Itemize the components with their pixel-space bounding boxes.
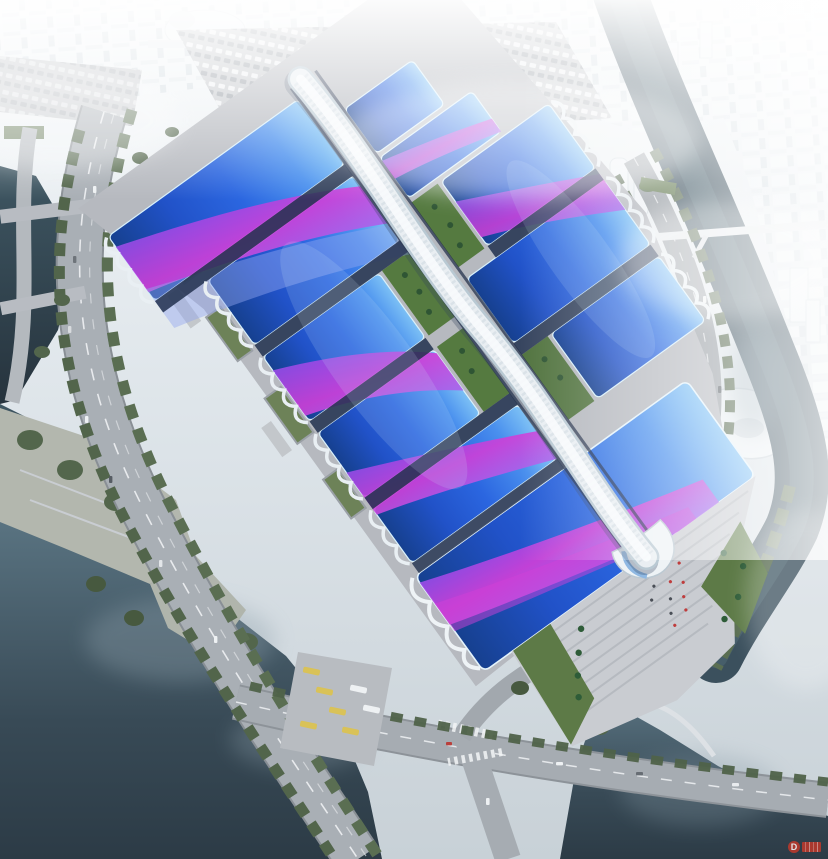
aerial-rendering-exhibition-center: D — [0, 0, 828, 859]
car — [732, 783, 739, 786]
tree-cluster — [86, 576, 106, 592]
tree-cluster — [124, 610, 144, 626]
tree-cluster — [17, 430, 43, 450]
mist-patch — [340, 80, 700, 200]
red-car — [446, 742, 452, 745]
tree-cluster — [511, 681, 529, 695]
car — [85, 416, 88, 423]
watermark: D — [788, 841, 821, 853]
bus-depot — [280, 652, 392, 766]
car — [636, 772, 643, 775]
scene-rendering — [0, 0, 828, 859]
car — [109, 476, 112, 483]
watermark-logo-icon: D — [788, 841, 800, 853]
car — [159, 560, 162, 567]
car — [68, 326, 71, 333]
tree-cluster — [34, 346, 50, 358]
watermark-glyphs — [802, 842, 821, 852]
car — [214, 636, 217, 643]
tree-cluster — [57, 460, 83, 480]
car — [73, 256, 76, 263]
car — [556, 762, 563, 765]
tree-cluster — [54, 294, 70, 306]
car — [486, 798, 490, 805]
